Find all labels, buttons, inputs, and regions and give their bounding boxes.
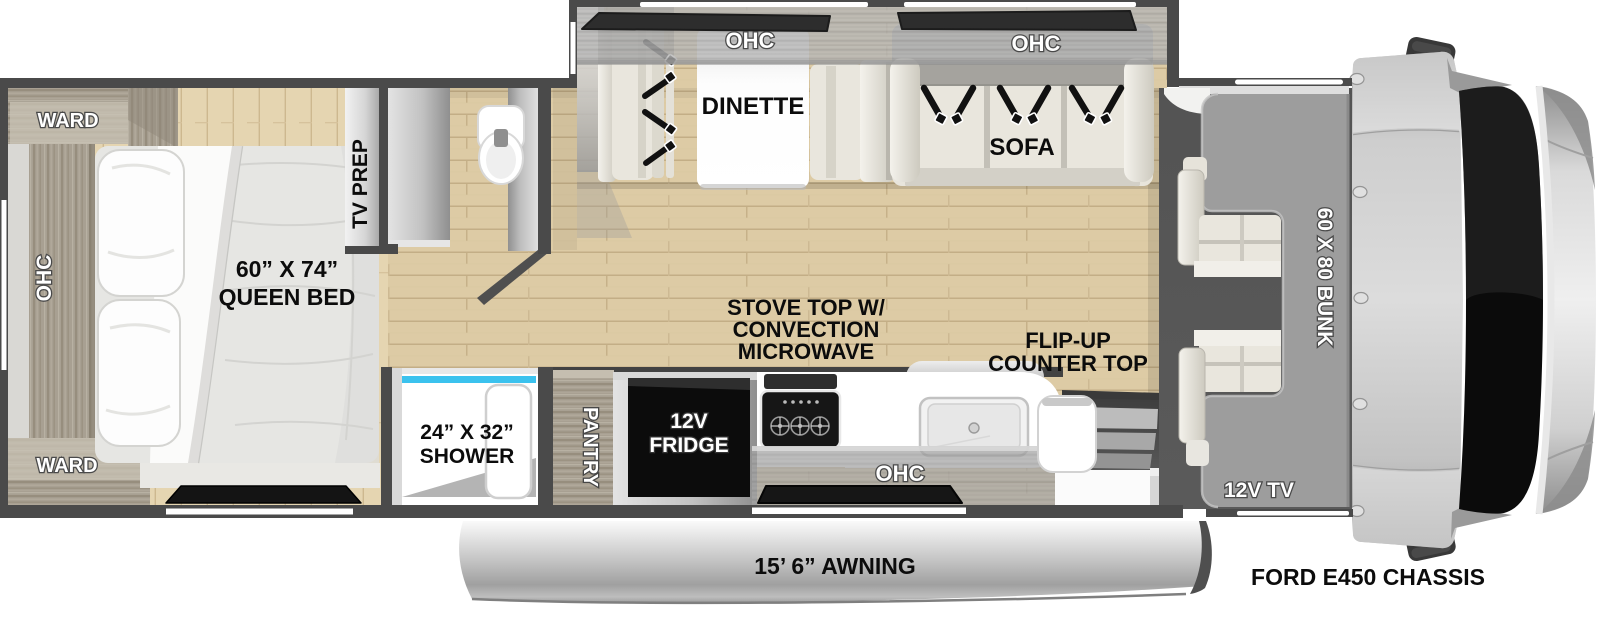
svg-text:MICROWAVE: MICROWAVE (738, 339, 874, 364)
svg-text:12V: 12V (670, 410, 707, 433)
svg-text:WARD: WARD (37, 110, 98, 132)
svg-text:60” X 74”: 60” X 74” (236, 256, 338, 282)
svg-text:15’ 6” AWNING: 15’ 6” AWNING (754, 553, 915, 579)
svg-text:OHC: OHC (33, 255, 56, 302)
svg-text:FLIP-UP: FLIP-UP (1025, 328, 1111, 353)
svg-text:COUNTER TOP: COUNTER TOP (988, 351, 1148, 376)
svg-text:QUEEN BED: QUEEN BED (219, 284, 356, 310)
svg-text:OHC: OHC (1012, 31, 1061, 56)
svg-text:WARD: WARD (36, 455, 97, 477)
svg-text:12V TV: 12V TV (1224, 479, 1294, 502)
svg-text:DINETTE: DINETTE (702, 93, 805, 120)
svg-text:60 X 80 BUNK: 60 X 80 BUNK (1313, 208, 1336, 347)
svg-text:OHC: OHC (726, 28, 775, 53)
svg-text:FORD E450 CHASSIS: FORD E450 CHASSIS (1251, 564, 1485, 590)
svg-text:OHC: OHC (876, 461, 925, 486)
svg-text:FRIDGE: FRIDGE (649, 434, 728, 457)
svg-text:TV PREP: TV PREP (349, 139, 372, 229)
svg-text:24” X 32”: 24” X 32” (420, 421, 513, 444)
svg-text:PANTRY: PANTRY (579, 407, 601, 488)
svg-text:SHOWER: SHOWER (420, 445, 515, 468)
svg-text:SOFA: SOFA (989, 134, 1054, 161)
